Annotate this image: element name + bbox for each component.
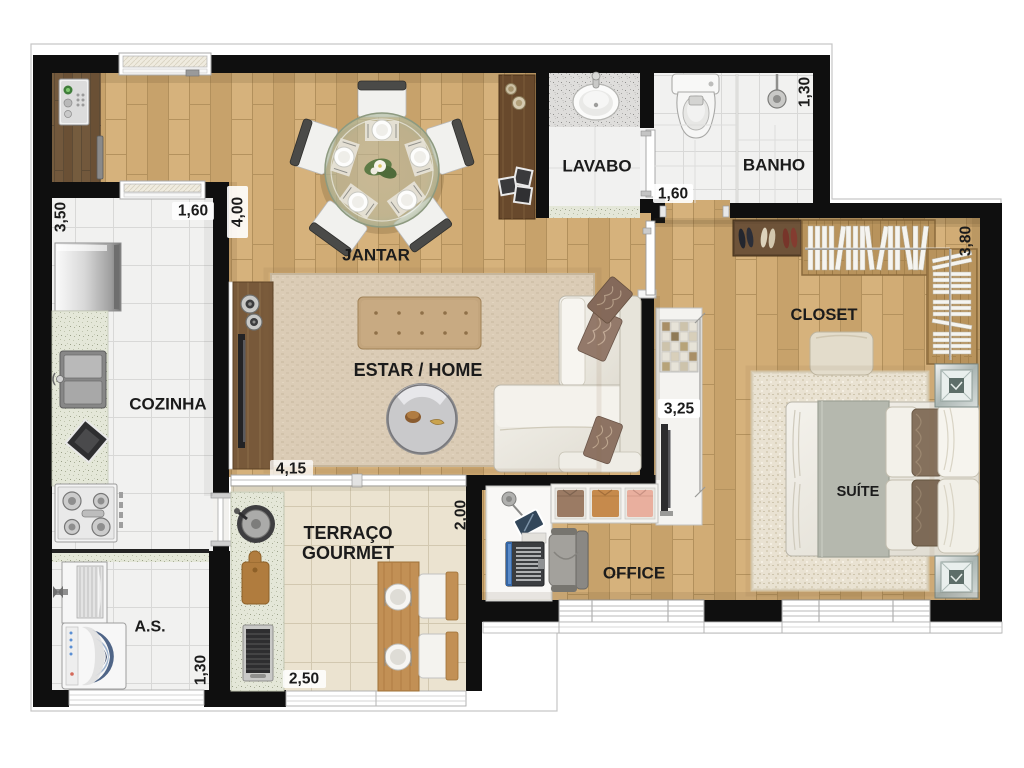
svg-text:JANTAR: JANTAR xyxy=(342,246,410,265)
svg-text:1,30: 1,30 xyxy=(193,655,210,685)
svg-text:1,60: 1,60 xyxy=(658,186,688,203)
svg-text:A.S.: A.S. xyxy=(134,619,165,636)
svg-text:OFFICE: OFFICE xyxy=(603,564,665,583)
svg-text:3,25: 3,25 xyxy=(664,401,695,418)
svg-text:3,80: 3,80 xyxy=(958,226,975,256)
svg-text:ESTAR / HOME: ESTAR / HOME xyxy=(354,360,483,380)
svg-text:3,50: 3,50 xyxy=(53,202,70,232)
svg-text:LAVABO: LAVABO xyxy=(562,157,631,176)
svg-text:1,60: 1,60 xyxy=(178,203,208,220)
svg-text:2,50: 2,50 xyxy=(289,671,319,688)
svg-text:COZINHA: COZINHA xyxy=(129,395,206,414)
svg-text:2,00: 2,00 xyxy=(453,500,470,530)
svg-text:BANHO: BANHO xyxy=(743,156,805,175)
svg-text:4,00: 4,00 xyxy=(230,197,247,227)
svg-text:SUÍTE: SUÍTE xyxy=(837,483,880,500)
svg-text:GOURMET: GOURMET xyxy=(302,543,394,563)
svg-text:4,15: 4,15 xyxy=(276,461,307,478)
svg-text:CLOSET: CLOSET xyxy=(791,306,858,324)
svg-text:TERRAÇO: TERRAÇO xyxy=(304,523,393,543)
svg-text:1,30: 1,30 xyxy=(797,77,814,107)
